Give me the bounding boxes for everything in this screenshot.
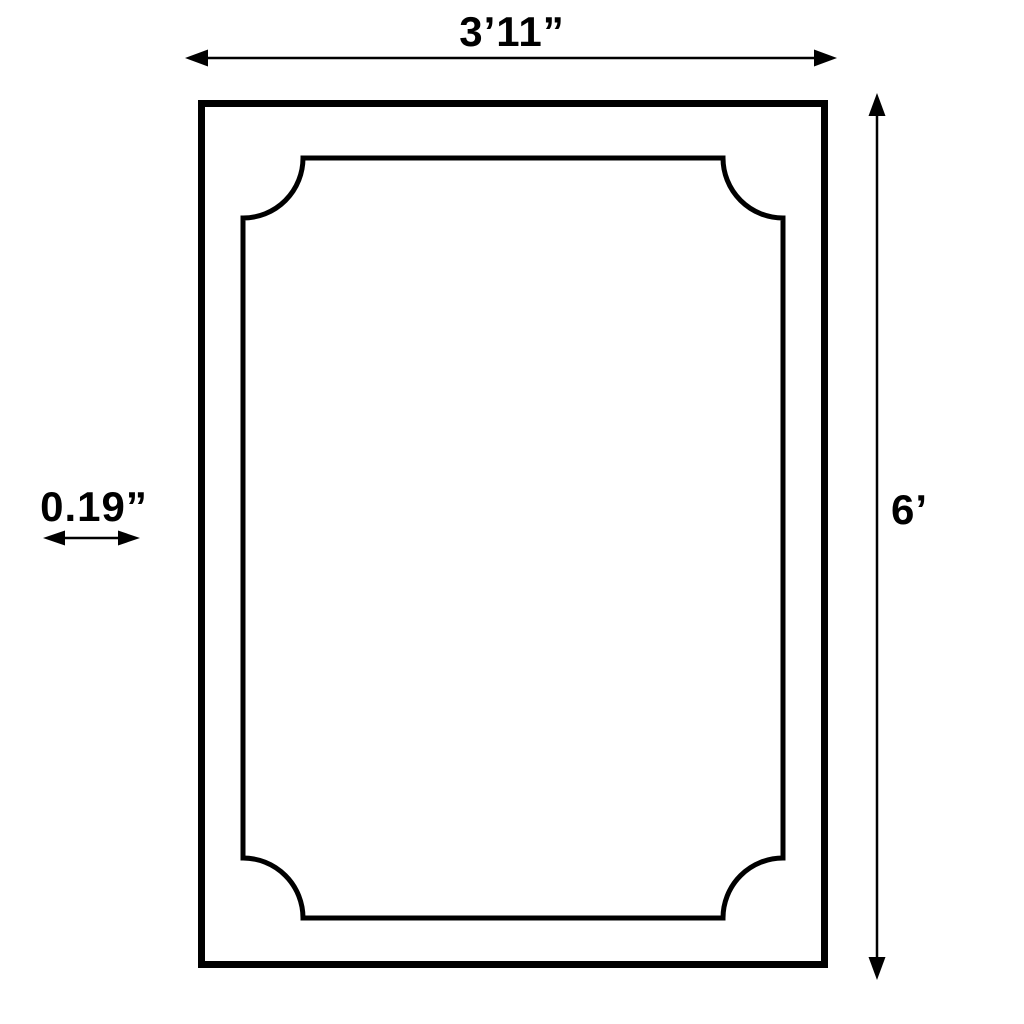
arrowhead-left-icon bbox=[185, 50, 208, 67]
arrowhead-left-icon bbox=[43, 531, 65, 546]
diagram-svg: 3’11” 6’ 0.19” bbox=[0, 0, 1024, 1024]
height-dimension: 6’ bbox=[869, 93, 929, 980]
width-dimension-label: 3’11” bbox=[459, 8, 564, 55]
thickness-dimension-label: 0.19” bbox=[40, 483, 148, 530]
thickness-dimension: 0.19” bbox=[40, 483, 148, 546]
height-dimension-label: 6’ bbox=[891, 486, 928, 533]
outer-frame-outline bbox=[202, 104, 825, 965]
inner-panel-outline bbox=[243, 158, 783, 918]
dimension-diagram: 3’11” 6’ 0.19” bbox=[0, 0, 1024, 1024]
arrowhead-right-icon bbox=[118, 531, 140, 546]
arrowhead-right-icon bbox=[814, 50, 837, 67]
width-dimension: 3’11” bbox=[185, 8, 837, 67]
arrowhead-up-icon bbox=[869, 93, 886, 116]
arrowhead-down-icon bbox=[869, 957, 886, 980]
